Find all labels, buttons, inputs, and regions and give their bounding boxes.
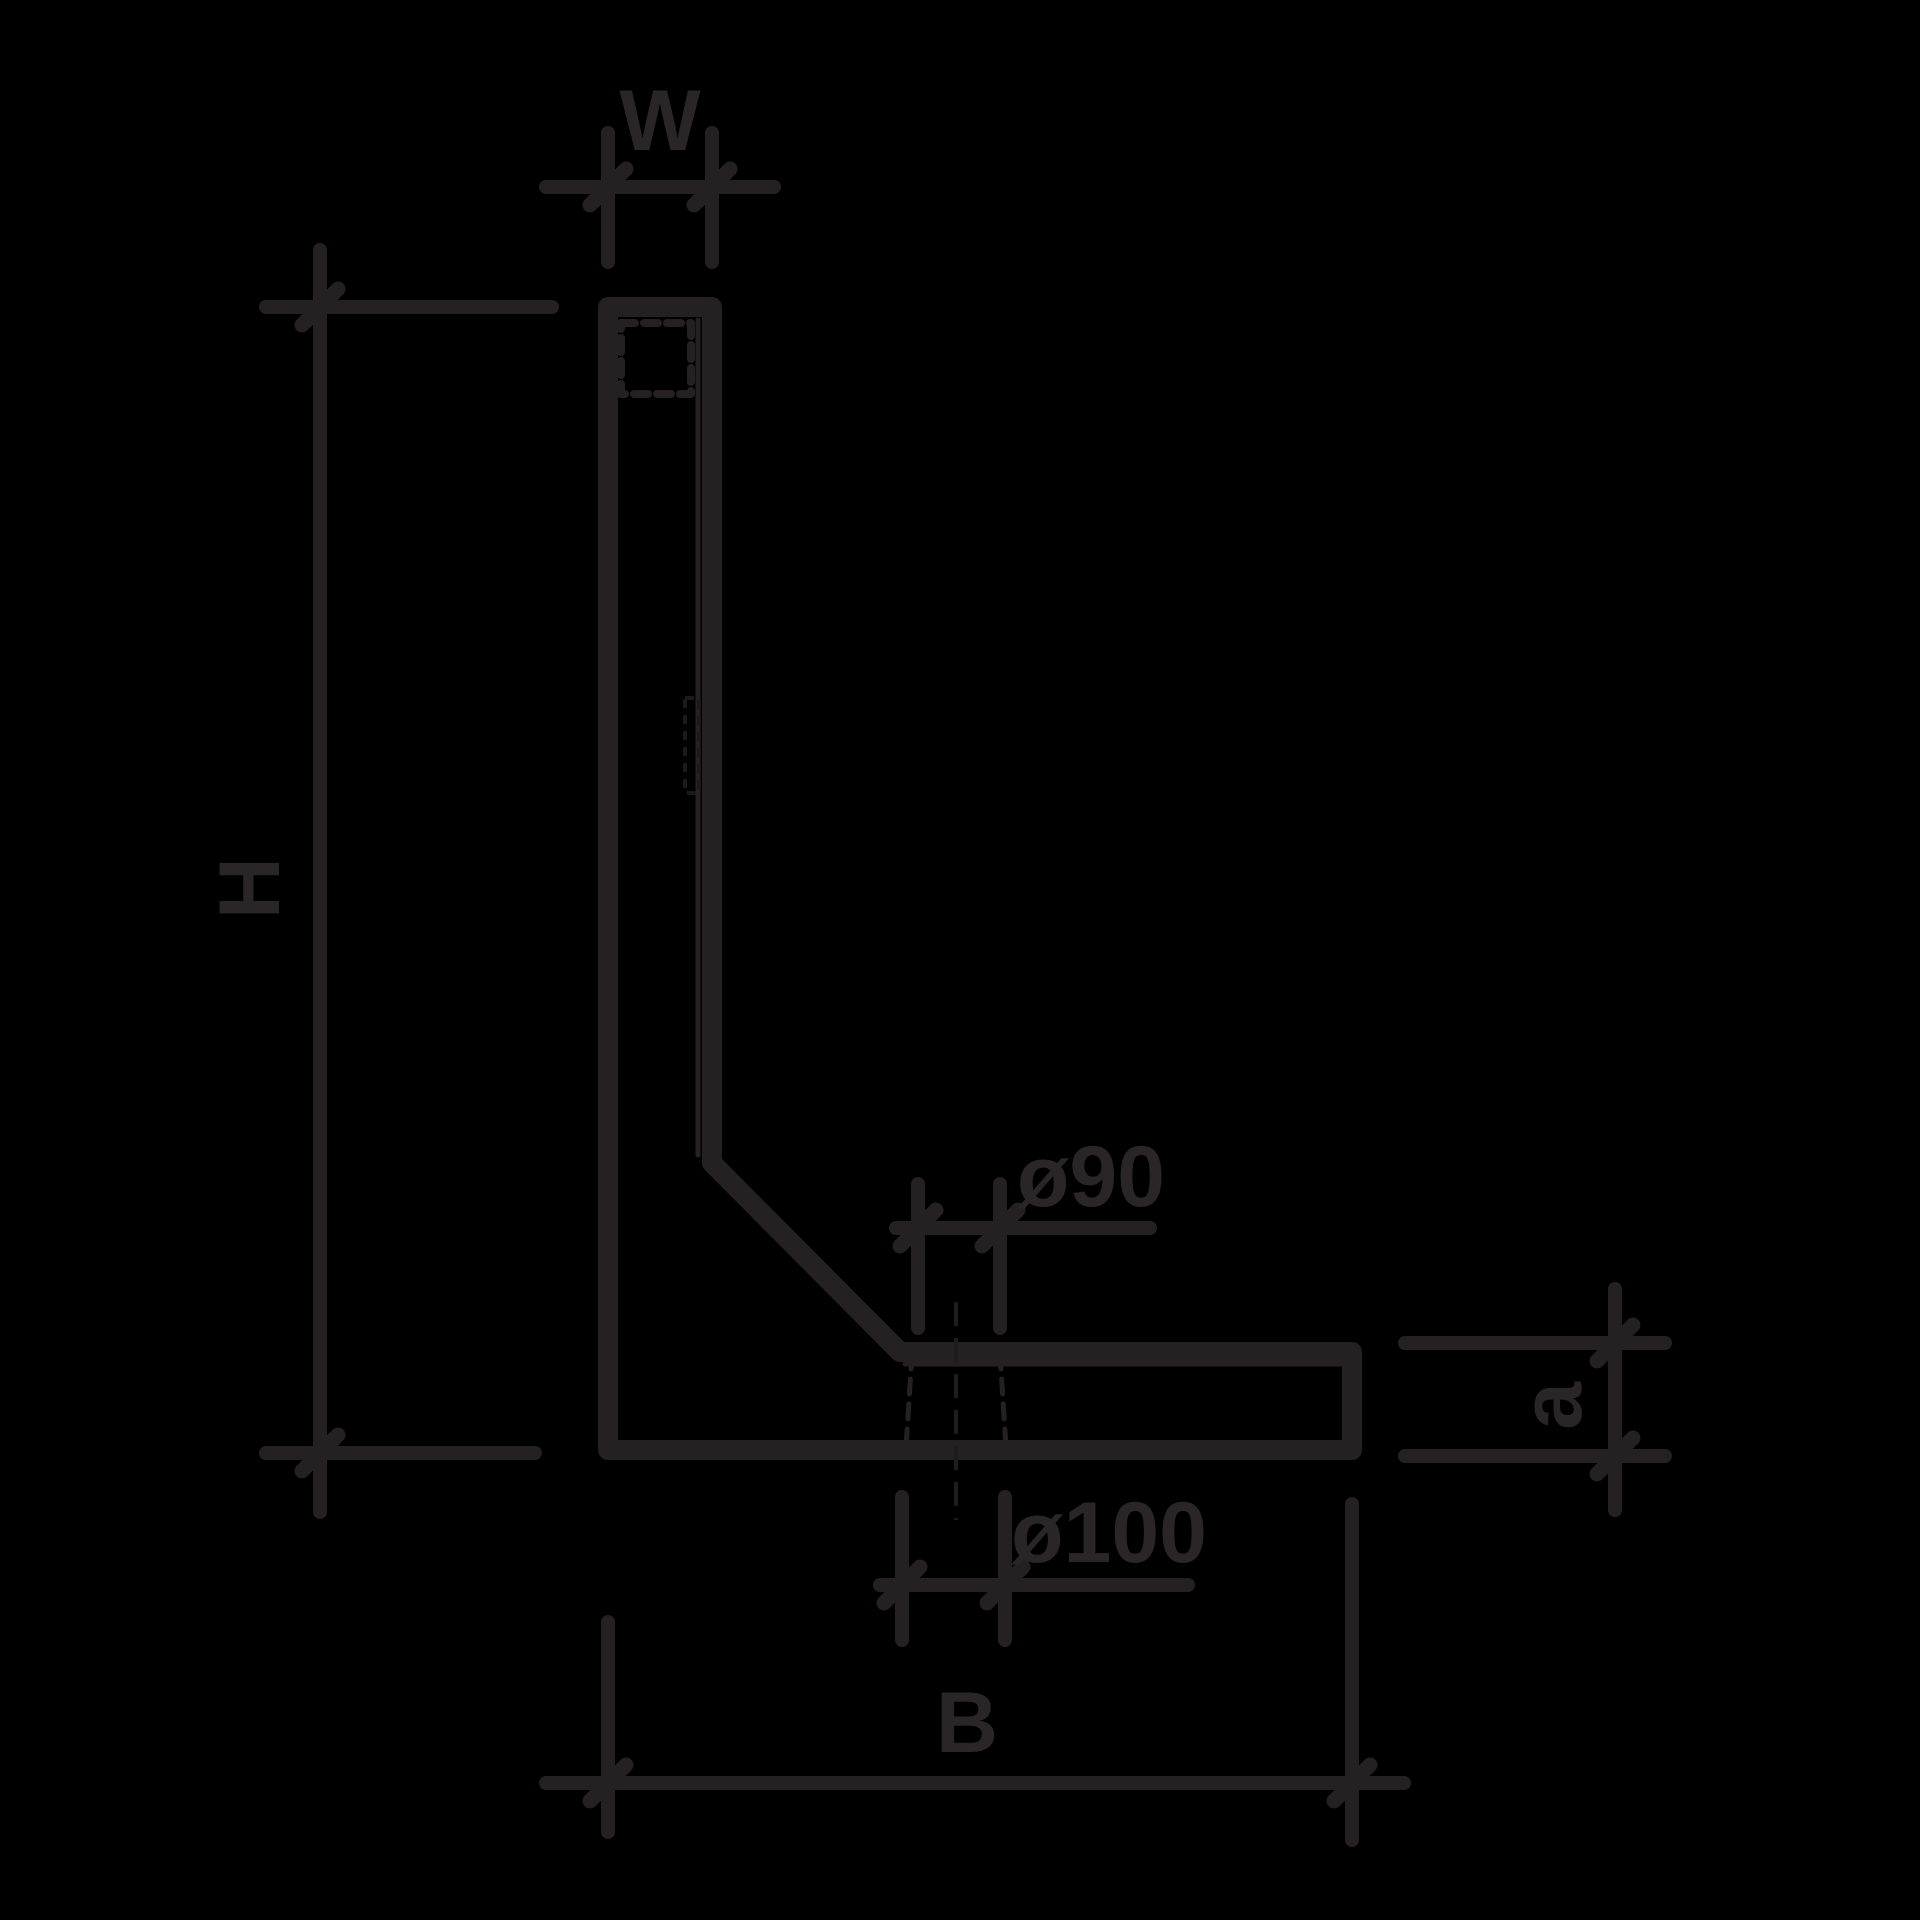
dimension-hole-lower: ø100: [880, 1485, 1207, 1640]
d100-label: ø100: [1011, 1485, 1207, 1581]
hidden-hole-edge-right: [1000, 1354, 1006, 1448]
d90-label: ø90: [1017, 1129, 1165, 1225]
dimension-hole-upper: ø90: [896, 1129, 1165, 1328]
hidden-details-group: [621, 323, 1006, 1520]
hidden-hole-edge-left: [906, 1354, 912, 1448]
l-profile-dimension-drawing: W H ø90 ø100: [0, 0, 1920, 1920]
element-outline-group: [608, 307, 1352, 1450]
dimension-b: B: [546, 1504, 1404, 1840]
element-outline: [608, 307, 1352, 1450]
dimension-w: W: [546, 73, 774, 262]
h-label: H: [202, 857, 298, 919]
a-label: a: [1504, 1381, 1600, 1430]
w-label: W: [619, 73, 701, 169]
drawing-canvas: W H ø90 ø100: [0, 0, 1920, 1920]
dimension-h: H: [202, 250, 552, 1512]
dimension-a: a: [1405, 1289, 1665, 1510]
b-label: B: [936, 1675, 998, 1771]
hidden-square-socket: [621, 323, 691, 394]
